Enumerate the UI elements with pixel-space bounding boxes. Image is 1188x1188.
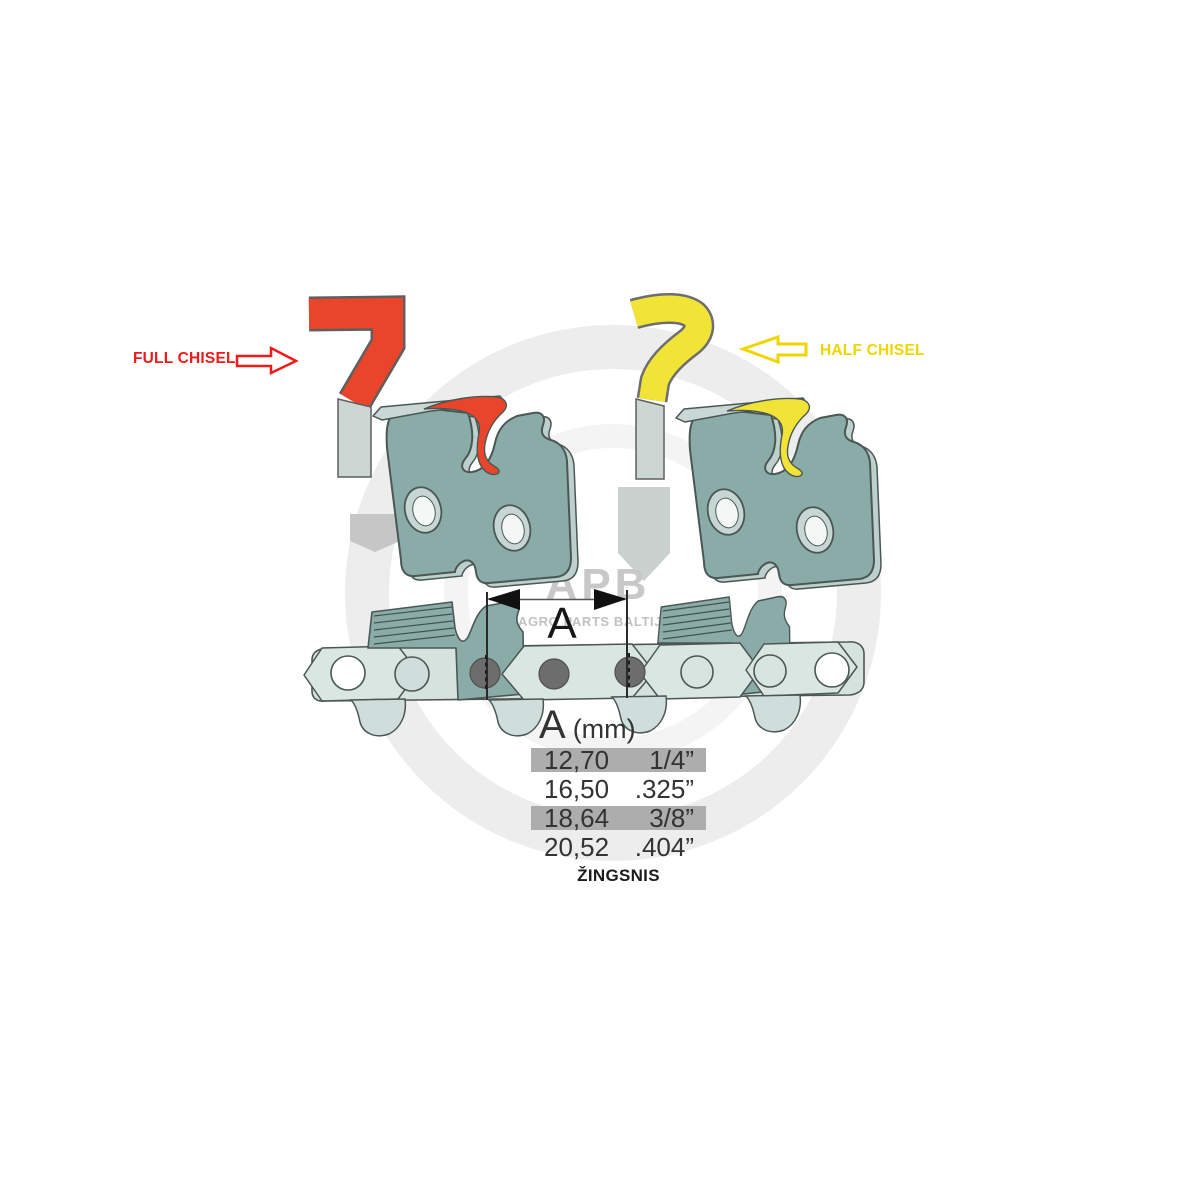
chain-hole xyxy=(395,657,429,691)
pitch-table-row: 16,50 .325” xyxy=(531,777,706,801)
pitch-table-header: A (mm) xyxy=(531,702,706,748)
watermark-subtitle-text: AGRO PARTS BALTIJA xyxy=(518,614,672,629)
pitch-mm-value: 18,64 xyxy=(544,806,609,830)
chain-pitch-diagram: APB AGRO PARTS BALTIJA xyxy=(0,0,1188,1188)
chain-hole xyxy=(754,655,786,687)
half-chisel-arrow-icon xyxy=(743,337,806,362)
pitch-mm-value: 12,70 xyxy=(544,748,609,772)
chain-hole xyxy=(681,656,713,688)
pitch-inch-value: .404” xyxy=(635,835,694,859)
pitch-table-row: 12,70 1/4” xyxy=(531,748,706,772)
half-chisel-cutter-link xyxy=(676,398,881,589)
pitch-inch-value: 3/8” xyxy=(649,806,694,830)
pitch-table-header-symbol: A xyxy=(539,702,566,748)
pitch-table-row: 20,52 .404” xyxy=(531,835,706,859)
chain-hole xyxy=(815,653,849,687)
pitch-mm-value: 20,52 xyxy=(544,835,609,859)
pitch-mm-value: 16,50 xyxy=(544,777,609,801)
chain-hole xyxy=(331,656,365,690)
full-chisel-stem xyxy=(338,399,371,477)
pitch-inch-value: .325” xyxy=(635,777,694,801)
pitch-table-header-unit: (mm) xyxy=(573,714,636,745)
half-chisel-label: HALF CHISEL xyxy=(820,342,925,360)
diagram-illustration: APB AGRO PARTS BALTIJA xyxy=(0,0,1188,1188)
pitch-inch-value: 1/4” xyxy=(649,748,694,772)
pitch-table: A (mm) 12,70 1/4” 16,50 .325” 18,64 3/8”… xyxy=(531,702,706,864)
pitch-table-row: 18,64 3/8” xyxy=(531,806,706,830)
full-chisel-cutter-link xyxy=(373,396,578,587)
rivet xyxy=(539,659,569,689)
full-chisel-profile xyxy=(309,313,388,477)
half-chisel-stem xyxy=(636,399,664,479)
full-chisel-arrow-icon xyxy=(237,348,296,373)
pitch-caption: ŽINGSNIS xyxy=(531,866,706,886)
full-chisel-label: FULL CHISEL xyxy=(133,350,236,368)
dimension-letter: A xyxy=(547,599,577,648)
